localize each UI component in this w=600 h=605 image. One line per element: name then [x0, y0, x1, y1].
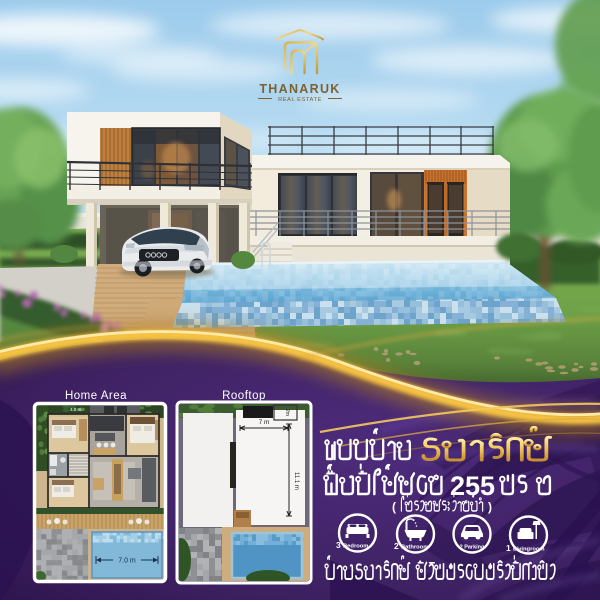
svg-text:(: (: [392, 500, 396, 514]
svg-text:Bathroom: Bathroom: [401, 545, 428, 551]
svg-text:3: 3: [336, 540, 341, 550]
svg-text:2m: 2m: [284, 409, 290, 416]
svg-text:2 Parking: 2 Parking: [460, 545, 485, 551]
svg-text:11.1 m: 11.1 m: [293, 472, 299, 490]
svg-text:Home Area: Home Area: [65, 390, 127, 402]
svg-text:1: 1: [506, 543, 511, 553]
svg-text:7.0 m: 7.0 m: [118, 558, 136, 565]
svg-text:4.0 m: 4.0 m: [70, 407, 82, 412]
svg-text:THANARUK: THANARUK: [259, 82, 340, 96]
svg-text:REAL ESTATE: REAL ESTATE: [278, 97, 322, 103]
svg-text:Livingroom: Livingroom: [513, 547, 545, 553]
svg-text:7 m: 7 m: [259, 419, 270, 426]
svg-text:): ): [488, 500, 492, 514]
svg-text:2: 2: [394, 541, 399, 551]
svg-text:Rooftop: Rooftop: [222, 390, 266, 402]
svg-text:Bedroom: Bedroom: [343, 544, 368, 550]
